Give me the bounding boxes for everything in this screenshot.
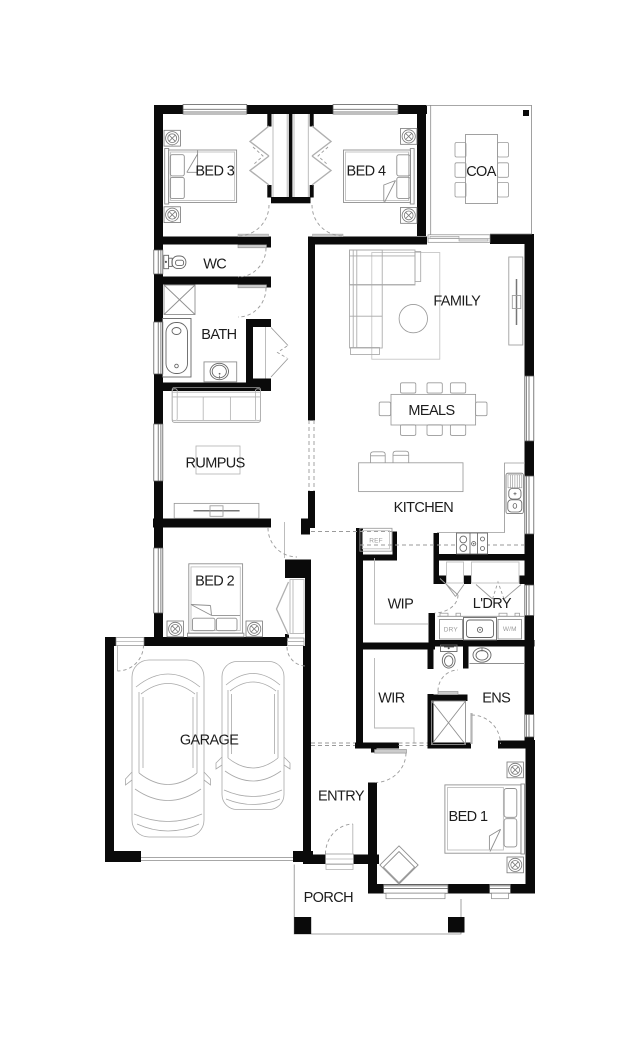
svg-text:COA: COA [466, 164, 497, 180]
svg-text:WIP: WIP [388, 597, 414, 613]
svg-text:BATH: BATH [201, 327, 236, 343]
svg-text:W/M: W/M [503, 626, 517, 633]
svg-text:ENS: ENS [482, 690, 510, 706]
svg-text:REF: REF [369, 537, 383, 544]
svg-text:FAMILY: FAMILY [433, 294, 481, 310]
svg-text:PORCH: PORCH [304, 890, 353, 906]
svg-text:BED 1: BED 1 [449, 809, 488, 825]
svg-text:WIR: WIR [378, 691, 405, 707]
svg-text:BED 3: BED 3 [195, 164, 234, 180]
svg-text:BED 4: BED 4 [347, 164, 386, 180]
svg-text:ENTRY: ENTRY [318, 788, 365, 804]
svg-text:GARAGE: GARAGE [180, 733, 239, 749]
svg-text:WC: WC [203, 256, 226, 272]
svg-text:RUMPUS: RUMPUS [185, 456, 244, 472]
svg-text:L'DRY: L'DRY [473, 596, 512, 612]
svg-text:DRY: DRY [444, 627, 459, 634]
svg-text:BED 2: BED 2 [195, 574, 234, 590]
svg-text:KITCHEN: KITCHEN [394, 500, 454, 516]
svg-text:MEALS: MEALS [408, 403, 454, 419]
